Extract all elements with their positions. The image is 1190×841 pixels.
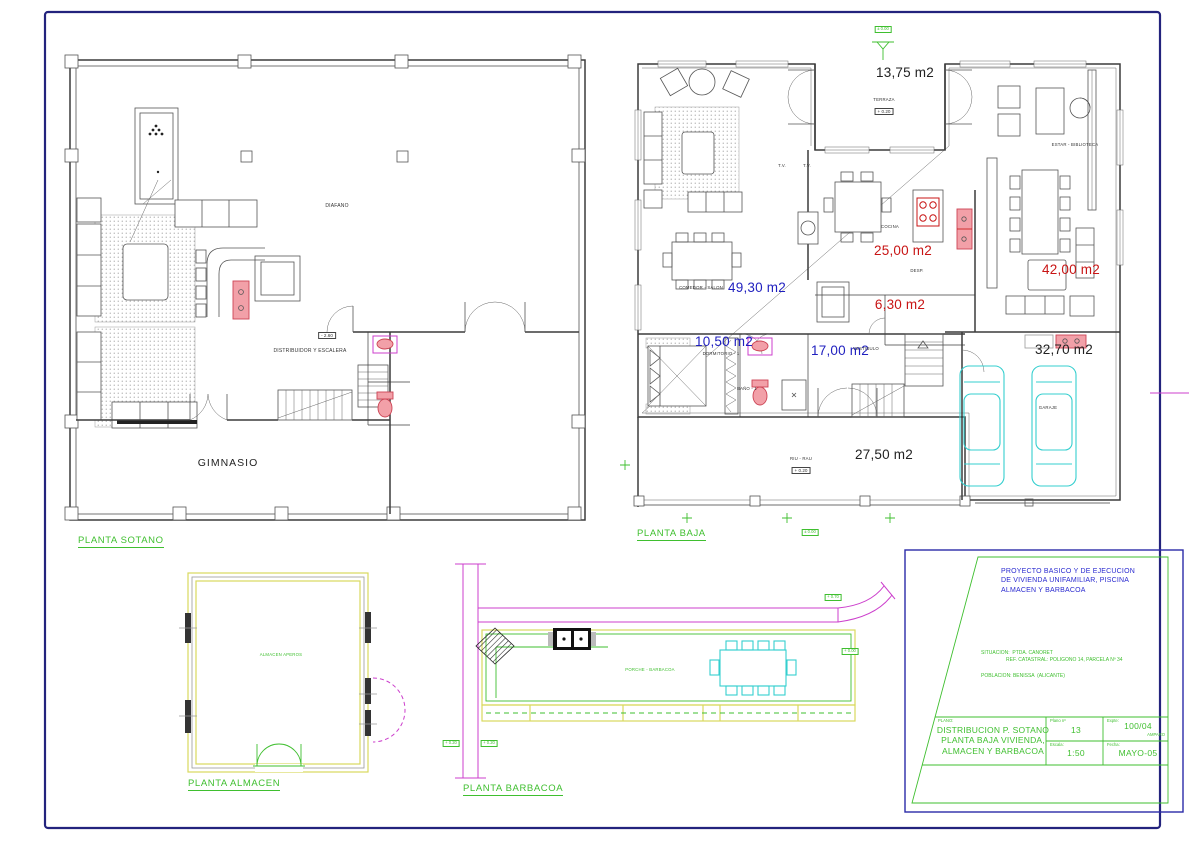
project-description: PROYECTO BASICO Y DE EJECUCION DE VIVIEN… xyxy=(1001,567,1135,595)
barbacoa-porch xyxy=(482,630,855,721)
area-terraza: 13,75 m2 xyxy=(876,66,934,81)
room-label-estar: ESTAR - BIBLIOTECA xyxy=(1052,143,1099,148)
area-garaje: 32,70 m2 xyxy=(1035,343,1093,358)
level-tag-baja-top: ± 0.00 xyxy=(875,26,892,33)
level-tag-barbacoa-right: + 0.00 xyxy=(842,648,859,655)
room-label-bano: BAÑO - 1 xyxy=(737,387,757,392)
sotano-seating-area-2 xyxy=(77,327,197,428)
room-label-distribuidor: DISTRIBUIDOR Y ESCALERA xyxy=(273,349,346,355)
plan-title-sotano: PLANTA SOTANO xyxy=(78,536,164,548)
plan-title-baja: PLANTA BAJA xyxy=(637,529,706,541)
level-tag-barbacoa-left1: + 0.20 xyxy=(443,740,460,747)
level-tag-barbacoa-top: + 0.70 xyxy=(825,594,842,601)
room-label-almacen: ALMACEN APEROS xyxy=(260,653,302,658)
room-label-garaje: GARAJE xyxy=(1039,406,1057,411)
room-label-terraza: TERRAZA xyxy=(873,98,894,103)
almacen-double-door xyxy=(253,744,305,772)
fecha-value: MAYO-05 xyxy=(1119,749,1158,758)
estar-furniture xyxy=(998,70,1096,316)
drawing-sheet: DIAFANO - 2.60 DISTRIBUIDOR Y ESCALERA G… xyxy=(0,0,1190,841)
poblacion-text: POBLACION: BENISSA (ALICANTE) xyxy=(981,673,1065,680)
plano-cell-label: PLANO: xyxy=(938,719,953,724)
expte-subtext: AMPARO xyxy=(1147,733,1165,738)
level-tag-riurau: + 0.20 xyxy=(792,467,811,474)
level-tag-barbacoa-left2: + 0.20 xyxy=(481,740,498,747)
area-dormitorio: 10,50 m2 xyxy=(695,335,753,350)
almacen-walls xyxy=(188,573,368,772)
room-label-diafano: DIAFANO xyxy=(325,204,348,210)
escala-value: 1:50 xyxy=(1067,749,1085,758)
plan-title-almacen: PLANTA ALMACEN xyxy=(188,779,280,791)
room-label-vestibulo: VESTIBULO xyxy=(853,347,879,352)
barbacoa-table xyxy=(710,641,796,695)
level-tag-baja-bottom: ± 0.00 xyxy=(802,529,819,536)
planta-almacen-drawing xyxy=(183,566,383,781)
area-riurau: 27,50 m2 xyxy=(855,448,913,463)
expte-cell-label: Expte: xyxy=(1107,719,1119,724)
almacen-windows xyxy=(179,612,377,736)
expte-number: 100/04 xyxy=(1124,722,1152,731)
area-comedor: 49,30 m2 xyxy=(728,281,786,296)
area-cocina: 25,00 m2 xyxy=(874,244,932,259)
room-label-gimnasio: GIMNASIO xyxy=(198,458,259,470)
planta-sotano-drawing xyxy=(57,52,592,527)
escala-cell-label: Escala: xyxy=(1050,743,1064,748)
situacion-text: SITUACION: PTDA. CANORET REF. CATASTRAL:… xyxy=(981,650,1123,663)
room-label-dormitorio: DORMITORIO - 1 xyxy=(703,352,740,357)
car-2 xyxy=(1032,366,1076,486)
plano-number: 13 xyxy=(1071,726,1081,735)
num-cell-label: Plano nº xyxy=(1050,719,1066,724)
room-label-riurau: RIU - RAU xyxy=(790,457,812,462)
car-1 xyxy=(960,366,1004,486)
fecha-cell-label: Fecha: xyxy=(1107,743,1120,748)
sotano-kitchen xyxy=(196,248,300,319)
label-tv-1: T.V. xyxy=(778,164,786,169)
room-label-desp: DESP. xyxy=(910,269,923,274)
room-label-barbacoa: PORCHE - BARBACOA xyxy=(625,668,674,673)
barbacoa-grill xyxy=(548,628,596,650)
label-tv-2: T.V. xyxy=(803,164,811,169)
level-tag-terraza: + 0.20 xyxy=(875,108,894,115)
area-desp: 6,30 m2 xyxy=(875,298,925,313)
salon-furniture xyxy=(644,68,749,289)
room-label-comedor: COMEDOR - SALON xyxy=(679,286,723,291)
plan-title-barbacoa: PLANTA BARBACOA xyxy=(463,784,563,796)
area-estar: 42,00 m2 xyxy=(1042,263,1100,278)
plano-title-text: DISTRIBUCION P. SOTANO PLANTA BAJA VIVIE… xyxy=(937,725,1049,756)
room-label-cocina: COCINA xyxy=(881,225,899,230)
level-tag-sotano: - 2.60 xyxy=(318,332,336,339)
